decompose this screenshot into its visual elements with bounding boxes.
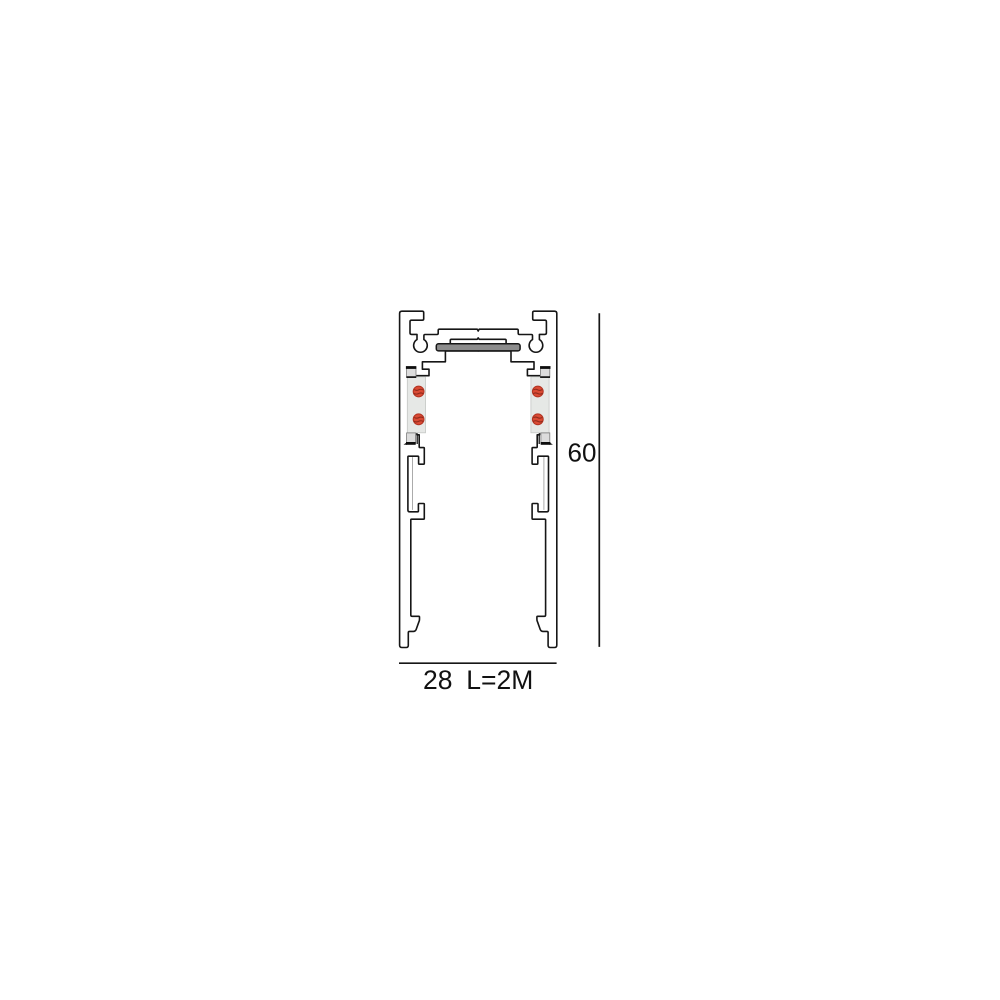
svg-text:L=2M: L=2M (466, 665, 533, 695)
svg-text:28: 28 (423, 665, 452, 695)
svg-text:60: 60 (568, 438, 597, 468)
